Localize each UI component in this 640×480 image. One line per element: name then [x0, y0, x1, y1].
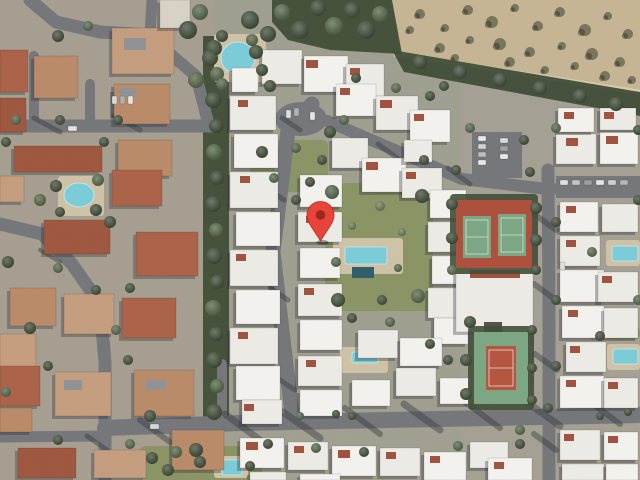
satellite-map[interactable]: [0, 0, 640, 480]
satellite-map-viewport[interactable]: [0, 0, 640, 480]
pin-dot: [316, 210, 326, 220]
